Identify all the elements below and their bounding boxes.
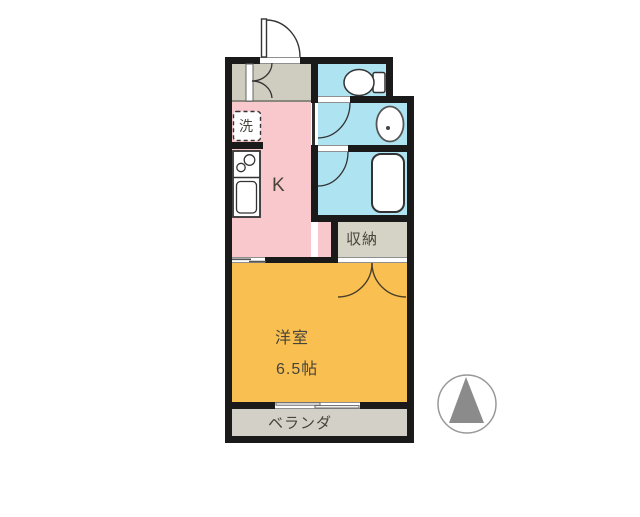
western-room-floor (232, 263, 407, 402)
floorplan-canvas: 洗 K 収納 洋室 6.5帖 ベランダ (0, 0, 640, 517)
wall-bottom (225, 436, 414, 443)
room-name-label: 洋室 (275, 331, 309, 347)
wall-washroom-bath-b (348, 145, 414, 152)
balcony-window-opening (275, 402, 360, 409)
washroom-floor (318, 103, 407, 145)
kitchen-floor-pocket (318, 222, 331, 257)
wall-balcony-left (225, 402, 275, 409)
entry-step-line (232, 100, 311, 102)
wall-bathroom-bottom (311, 215, 414, 222)
kitchen-label: K (272, 176, 286, 195)
bath-door-opening (318, 145, 348, 152)
entrance-door-icon (262, 19, 301, 57)
washer-label: 洗 (239, 119, 254, 133)
wall-washer-stub (225, 142, 263, 149)
entryway-floor (232, 64, 311, 102)
compass-icon (438, 375, 496, 433)
storage-label: 収納 (346, 232, 378, 247)
bathroom-floor (318, 152, 407, 215)
balcony-label: ベランダ (268, 416, 332, 431)
entrance-door-opening (260, 57, 300, 64)
kitchen-room-opening (230, 257, 266, 263)
wall-washroom-bath-a (311, 145, 318, 152)
toilet-room-floor (318, 64, 386, 96)
closet-opening (338, 257, 407, 263)
kitchen-washroom-line (312, 103, 315, 145)
toilet-door-opening (318, 96, 350, 103)
wall-storage-left (331, 215, 338, 263)
wall-toilet-washroom-b (350, 96, 414, 103)
wall-toilet-washroom-a (311, 96, 318, 103)
wall-top (225, 57, 393, 64)
wall-kitchen-room (265, 257, 335, 263)
wall-left (225, 57, 232, 443)
wall-bathroom-left (311, 152, 318, 222)
wall-balcony-right (360, 402, 414, 409)
room-size-label: 6.5帖 (276, 362, 318, 378)
